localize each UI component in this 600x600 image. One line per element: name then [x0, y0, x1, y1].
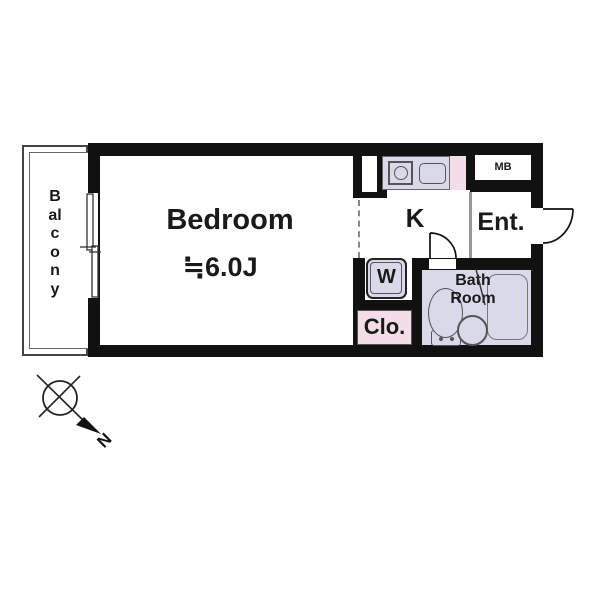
entrance-door-opening	[531, 208, 543, 244]
washer-box: W	[366, 258, 407, 299]
bedroom-label: Bedroom	[125, 204, 335, 237]
entrance-door	[543, 209, 573, 243]
kitchen-label: K	[398, 203, 432, 234]
compass-arrowhead	[76, 417, 101, 434]
kitchen-sink	[388, 161, 413, 185]
meter-box-label: MB	[494, 161, 511, 173]
balcony-label: Balcony	[47, 188, 63, 299]
bedroom-kitchen-partition-dashed	[358, 200, 360, 258]
bathroom-label-line2: Room	[433, 290, 513, 308]
entrance-label: Ent.	[470, 208, 532, 237]
pipe-space	[362, 156, 377, 192]
kitchen-side-area	[450, 156, 466, 190]
bathroom-door-threshold	[428, 258, 457, 270]
bathroom-label-line1: Bath	[433, 272, 513, 290]
bathroom-label: Bath Room	[433, 272, 513, 307]
bedroom-size-label: ≒6.0J	[120, 252, 320, 283]
compass-icon: N	[37, 375, 115, 451]
meter-box: MB	[475, 155, 531, 180]
compass-north-label: N	[93, 429, 115, 451]
kitchen-sink-drain	[394, 166, 408, 180]
closet-label: Clo.	[364, 314, 406, 339]
balcony-window-opening	[86, 193, 98, 298]
floor-plan: Balcony MB Bath Room Clo. W Bedroom	[0, 0, 600, 600]
toilet-detail-dot	[450, 337, 454, 341]
bedroom-room	[100, 156, 353, 345]
stove	[419, 163, 446, 184]
bathroom-sink	[457, 315, 488, 346]
closet: Clo.	[357, 310, 412, 345]
washer-box-inner	[370, 262, 402, 294]
toilet-detail-dot	[439, 337, 443, 341]
